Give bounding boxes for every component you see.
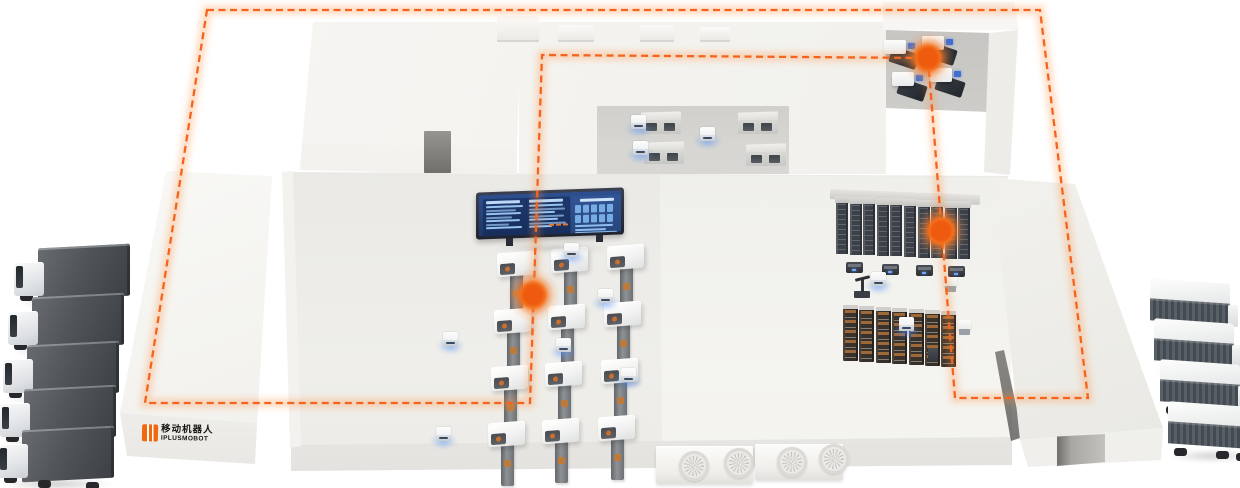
- logo-mark: [142, 424, 158, 441]
- vent-fan: [819, 444, 849, 474]
- storage-tower: [836, 202, 848, 254]
- display-block-row: [575, 204, 621, 214]
- right-truck: [1168, 402, 1240, 462]
- truck-cargo-box: [22, 426, 114, 483]
- display-row: [529, 218, 558, 221]
- display-row: [486, 209, 516, 212]
- storage-tower: [863, 203, 875, 255]
- robot-base: [854, 291, 870, 298]
- cnc-machine: [598, 416, 638, 488]
- small-equipment: [928, 348, 938, 361]
- press-indicator: [916, 75, 923, 81]
- storage-tower: [850, 203, 862, 255]
- logo-text-en: IPLUSMOBOT: [161, 435, 214, 443]
- dock-shuttle: [916, 265, 933, 276]
- display-row: [529, 204, 563, 207]
- agv-front: [899, 325, 914, 331]
- dock-shuttle: [948, 266, 965, 277]
- display-block: [575, 215, 581, 223]
- press-head: [930, 68, 952, 82]
- agv-robot: [564, 243, 579, 259]
- display-row: [486, 219, 520, 222]
- scene-content: [0, 0, 1240, 488]
- press-indicator: [908, 43, 915, 49]
- agv-robot: [598, 289, 613, 305]
- vent-fan: [679, 451, 709, 481]
- display-screen: [479, 191, 621, 237]
- vent-unit: [755, 444, 843, 480]
- truck-windshield: [0, 448, 7, 470]
- press-machine: [922, 36, 958, 70]
- cnc-head: [545, 361, 582, 388]
- truck-windshield: [16, 266, 23, 288]
- cnc-head: [491, 365, 528, 392]
- cnc-bed: [501, 440, 514, 486]
- agv-front: [631, 123, 646, 129]
- agv-front: [871, 280, 886, 286]
- display-tick: [549, 224, 554, 226]
- truck-container-side: [1168, 421, 1240, 449]
- display-bar: [575, 224, 613, 227]
- vent-fan: [724, 448, 754, 478]
- press-machine: [884, 40, 920, 74]
- agv-front: [621, 376, 636, 382]
- robot-mast: [861, 279, 864, 292]
- truck-cargo-box: [38, 244, 130, 301]
- cnc-bed: [555, 437, 568, 483]
- truck-wheel: [1216, 451, 1229, 459]
- agv-robot: [631, 115, 646, 131]
- cabinet-slot: [761, 123, 772, 131]
- mobile-robot: [958, 320, 971, 336]
- agv-robot: [436, 427, 451, 443]
- storage-tower: [904, 205, 916, 257]
- agv-front: [564, 251, 579, 257]
- truck-wheel: [86, 482, 99, 488]
- display-block: [583, 215, 589, 223]
- pallet-rack: [843, 305, 858, 361]
- cabinet-slot: [751, 155, 762, 163]
- brand-logo: 移动机器人 IPLUSMOBOT: [142, 424, 214, 442]
- truck-wheel: [1236, 453, 1240, 461]
- vent-unit: [656, 446, 753, 484]
- display-block: [591, 204, 597, 212]
- agv-robot: [556, 338, 571, 354]
- display-chart-title: [580, 198, 614, 202]
- storage-tower: [877, 204, 889, 256]
- agv-front: [436, 435, 451, 441]
- display-row: [529, 214, 564, 217]
- rooftop-unit: [497, 16, 539, 42]
- pallet-rack: [859, 306, 874, 362]
- press-indicator: [954, 71, 961, 77]
- storage-tower: [931, 206, 943, 258]
- storage-tower: [945, 207, 957, 259]
- cnc-bed: [611, 434, 624, 480]
- pallet-rack: [876, 307, 891, 363]
- display-row: [529, 207, 565, 210]
- display-row: [486, 216, 512, 219]
- display-block: [583, 205, 589, 213]
- display-board: [476, 187, 624, 239]
- agv-front: [556, 346, 571, 352]
- agv-robot: [700, 127, 715, 143]
- display-table: [483, 198, 527, 237]
- display-row: [486, 223, 509, 226]
- agv-robot: [899, 317, 914, 333]
- display-block-row: [575, 214, 621, 224]
- display-block: [591, 214, 597, 222]
- cnc-machine: [488, 422, 528, 488]
- truck-windshield: [10, 315, 17, 337]
- display-bar: [575, 231, 617, 234]
- press-head: [884, 40, 906, 54]
- truck-windshield: [2, 407, 9, 429]
- agv-robot: [621, 368, 636, 384]
- press-head: [892, 72, 914, 86]
- press-machine: [930, 68, 966, 102]
- smart-factory-illustration: 移动机器人 IPLUSMOBOT: [0, 0, 1240, 488]
- storage-tower: [890, 204, 902, 256]
- rooftop-unit: [558, 25, 594, 42]
- display-block: [599, 204, 605, 212]
- cabinet-slot: [743, 123, 754, 131]
- vent-fan: [777, 447, 807, 477]
- cnc-head: [494, 308, 531, 335]
- cnc-head: [497, 251, 534, 278]
- display-bar: [575, 228, 606, 231]
- truck-wheel: [38, 480, 51, 488]
- display-row: [486, 226, 522, 229]
- cnc-head: [542, 418, 579, 445]
- cabinet-slot: [667, 153, 678, 161]
- agv-front: [633, 149, 648, 155]
- display-row: [486, 205, 523, 208]
- agv-robot: [871, 272, 886, 288]
- display-tick: [556, 224, 561, 226]
- storage-tower: [958, 207, 970, 259]
- display-block: [575, 205, 581, 213]
- cnc-head: [548, 304, 585, 331]
- pallet-rack: [941, 311, 956, 367]
- storage-tower: [918, 206, 930, 258]
- display-row: [529, 211, 555, 214]
- display-table: [526, 196, 570, 236]
- display-block: [607, 214, 613, 222]
- cabinet-slot: [769, 155, 780, 163]
- agv-robot: [633, 141, 648, 157]
- mobile-robot: [944, 277, 957, 293]
- cnc-machine: [542, 419, 582, 488]
- cabinet-slot: [664, 123, 675, 131]
- left-truck: [0, 428, 118, 488]
- agv-front: [598, 297, 613, 303]
- rooftop-unit: [640, 25, 674, 42]
- agv-front: [700, 135, 715, 141]
- press-machine: [892, 72, 928, 106]
- cnc-head: [488, 421, 525, 448]
- workstation-cabinet: [746, 144, 786, 168]
- display-chart-panel: [571, 194, 621, 235]
- display-block: [599, 214, 605, 222]
- press-head: [922, 36, 944, 50]
- display-tick: [563, 223, 568, 225]
- press-indicator: [946, 39, 953, 45]
- logo-text-zh: 移动机器人: [161, 425, 214, 436]
- display-row: [486, 212, 521, 215]
- display-block: [607, 204, 613, 212]
- rooftop-unit: [700, 27, 730, 42]
- agv-robot: [443, 332, 458, 348]
- agv-front: [443, 340, 458, 346]
- cnc-head: [598, 415, 635, 442]
- workstation-cabinet: [738, 112, 778, 136]
- dock-shuttle: [846, 262, 863, 273]
- truck-windshield: [5, 363, 12, 385]
- truck-wheel: [1174, 448, 1187, 456]
